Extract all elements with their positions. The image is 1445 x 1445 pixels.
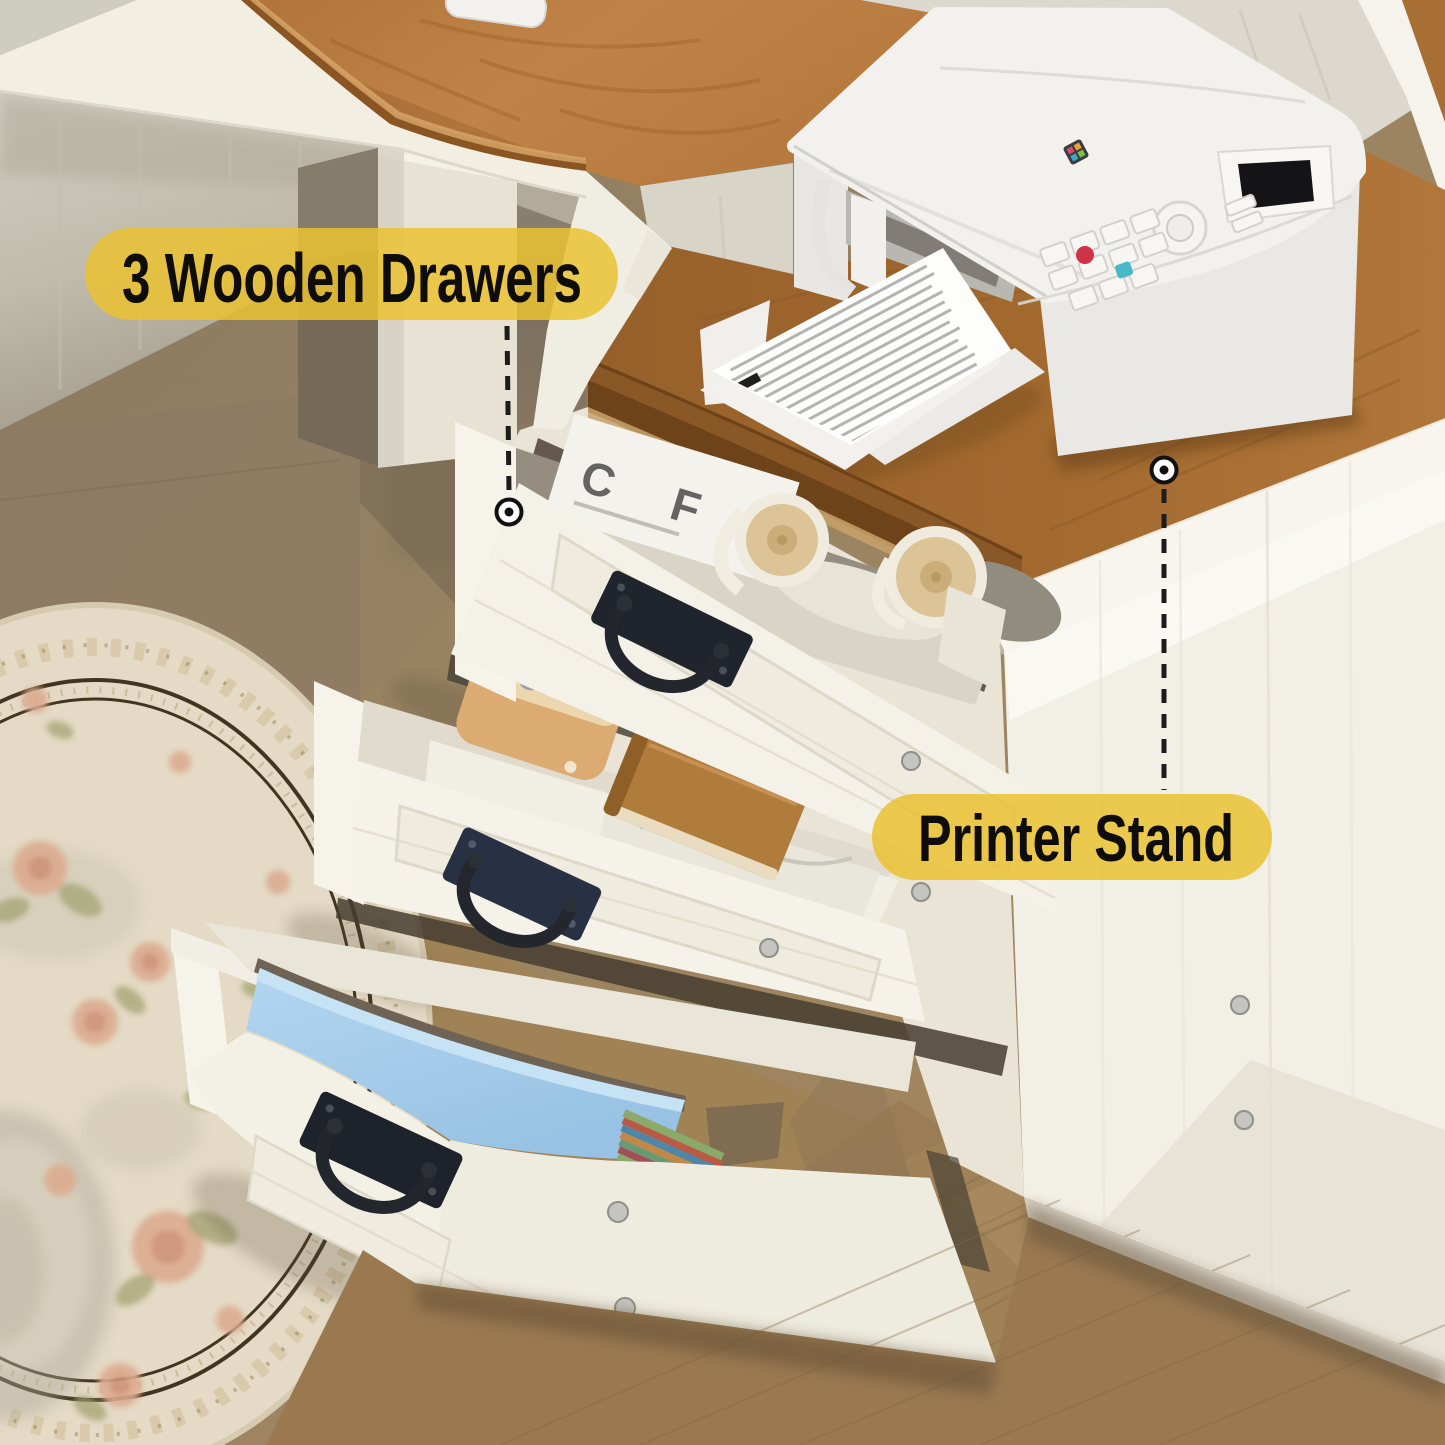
svg-text:3 Wooden Drawers: 3 Wooden Drawers [122,239,582,317]
svg-text:Printer Stand: Printer Stand [918,801,1234,875]
